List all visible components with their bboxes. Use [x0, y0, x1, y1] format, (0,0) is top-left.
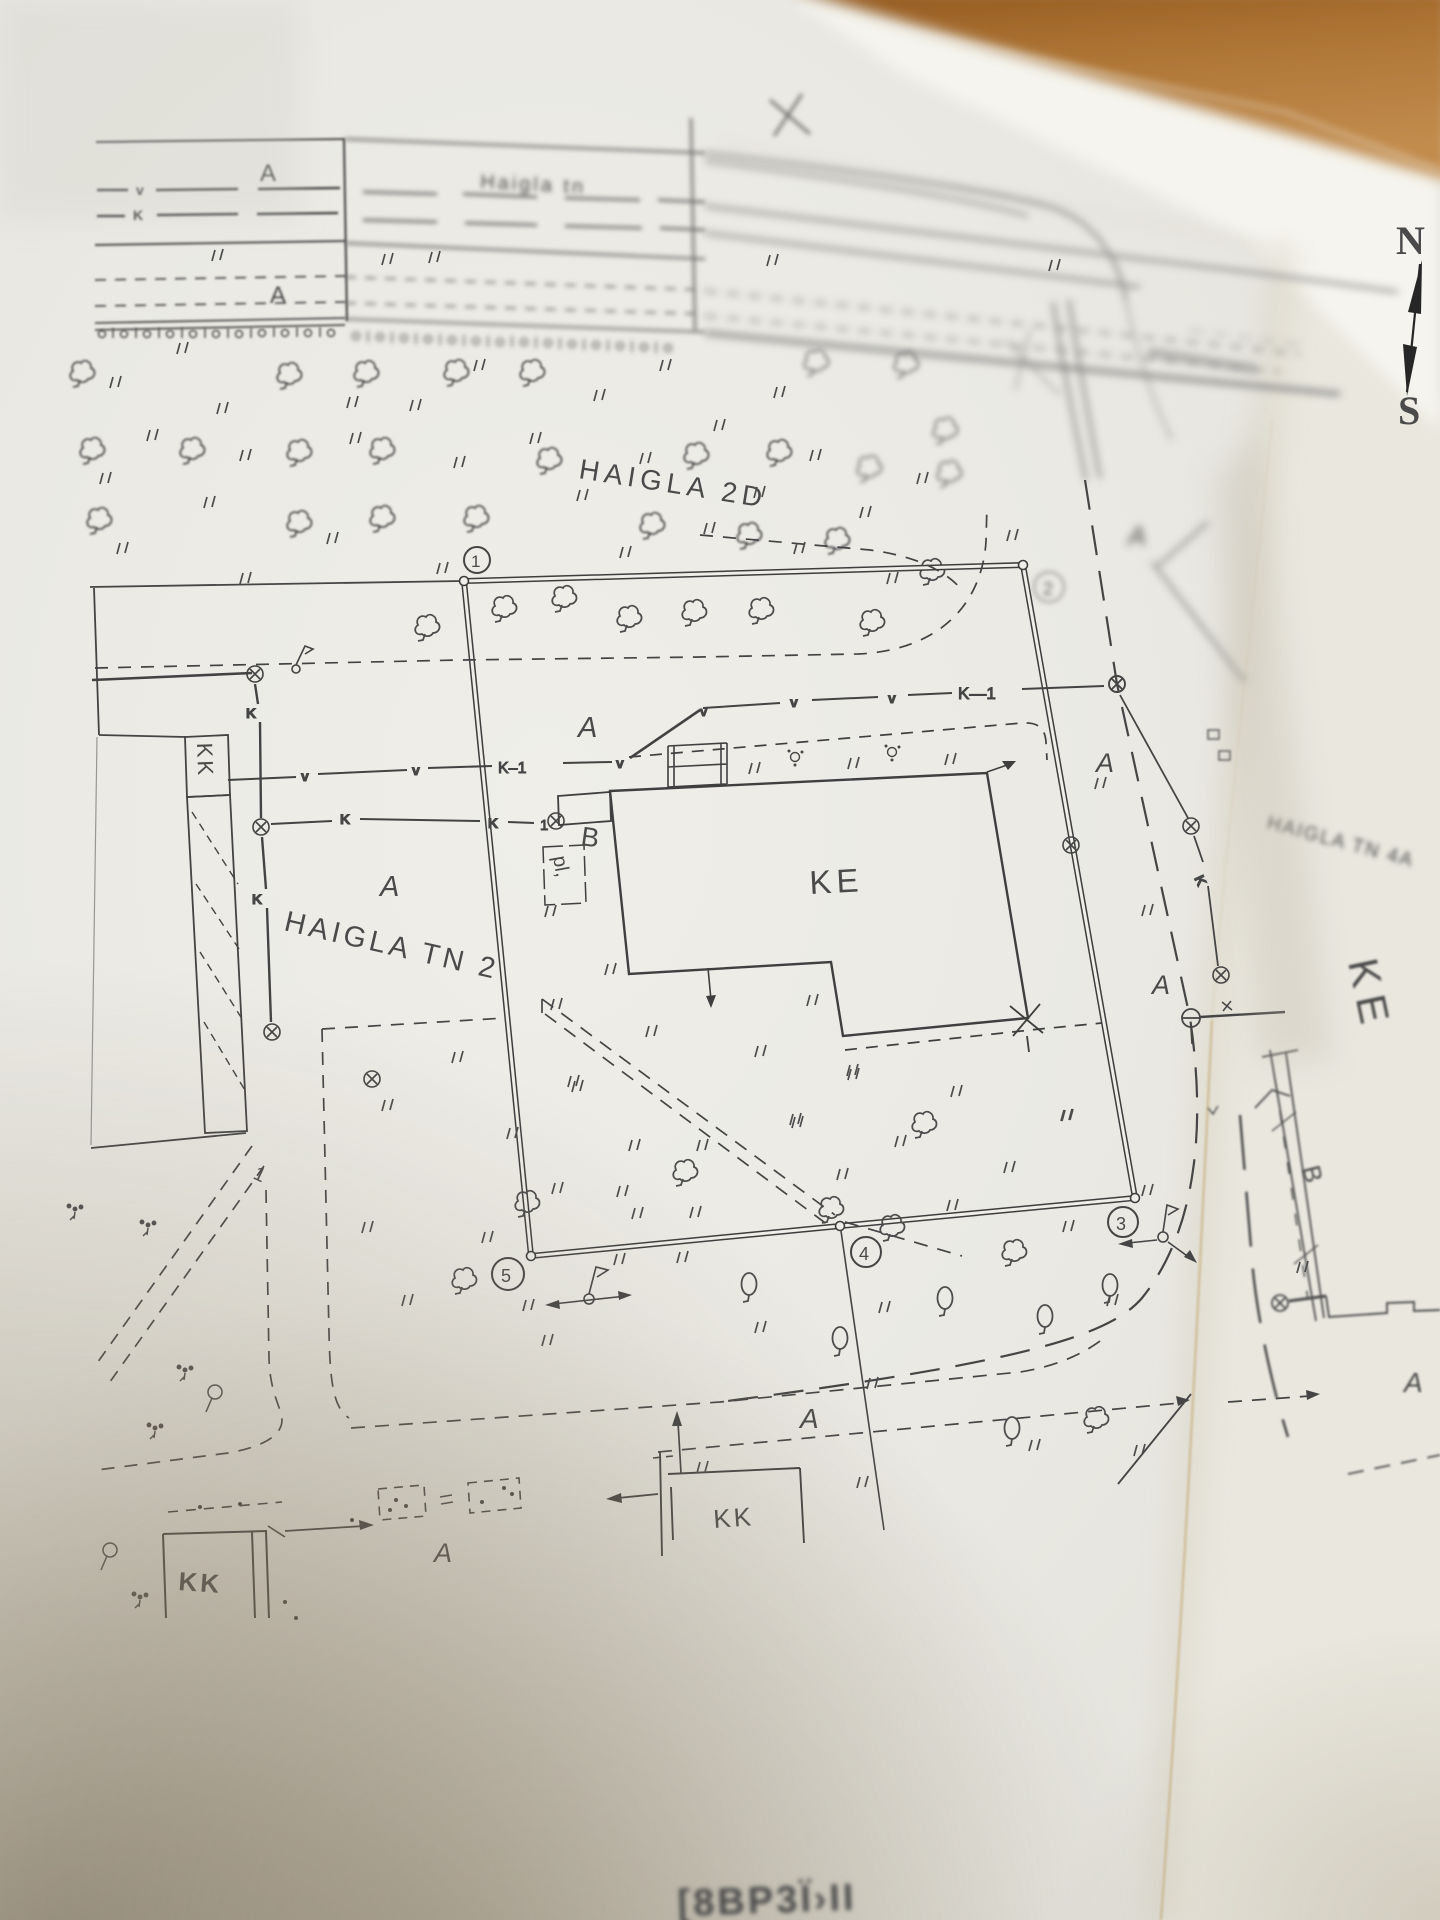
svg-text:A: A: [576, 712, 597, 744]
svg-text:A: A: [378, 871, 399, 903]
svg-text:[8ВР3Ї›ІІ: [8ВР3Ї›ІІ: [677, 1876, 857, 1920]
svg-text:KK: KK: [192, 742, 218, 778]
svg-text:KE: KE: [808, 861, 864, 901]
svg-text:S: S: [1398, 388, 1420, 433]
svg-text:v: v: [888, 690, 896, 706]
svg-text:K—1: K—1: [958, 684, 996, 703]
svg-text:A: A: [1094, 748, 1114, 778]
svg-text:K: K: [340, 811, 350, 827]
svg-text:2: 2: [1043, 579, 1053, 599]
svg-text:pl,: pl,: [548, 854, 573, 879]
svg-text:v: v: [700, 704, 708, 719]
svg-text:v: v: [412, 762, 420, 778]
svg-text:A: A: [1126, 521, 1146, 551]
svg-text:1: 1: [471, 552, 480, 571]
svg-text:N: N: [1396, 218, 1425, 263]
svg-text:K: K: [488, 815, 498, 831]
svg-text:K: K: [246, 705, 256, 721]
svg-text:v: v: [616, 755, 624, 771]
svg-text:K–1: K–1: [498, 760, 527, 777]
svg-text:v: v: [790, 694, 798, 710]
svg-text:v: v: [301, 768, 309, 784]
svg-text:A: A: [270, 282, 286, 309]
svg-text:1: 1: [540, 817, 548, 834]
